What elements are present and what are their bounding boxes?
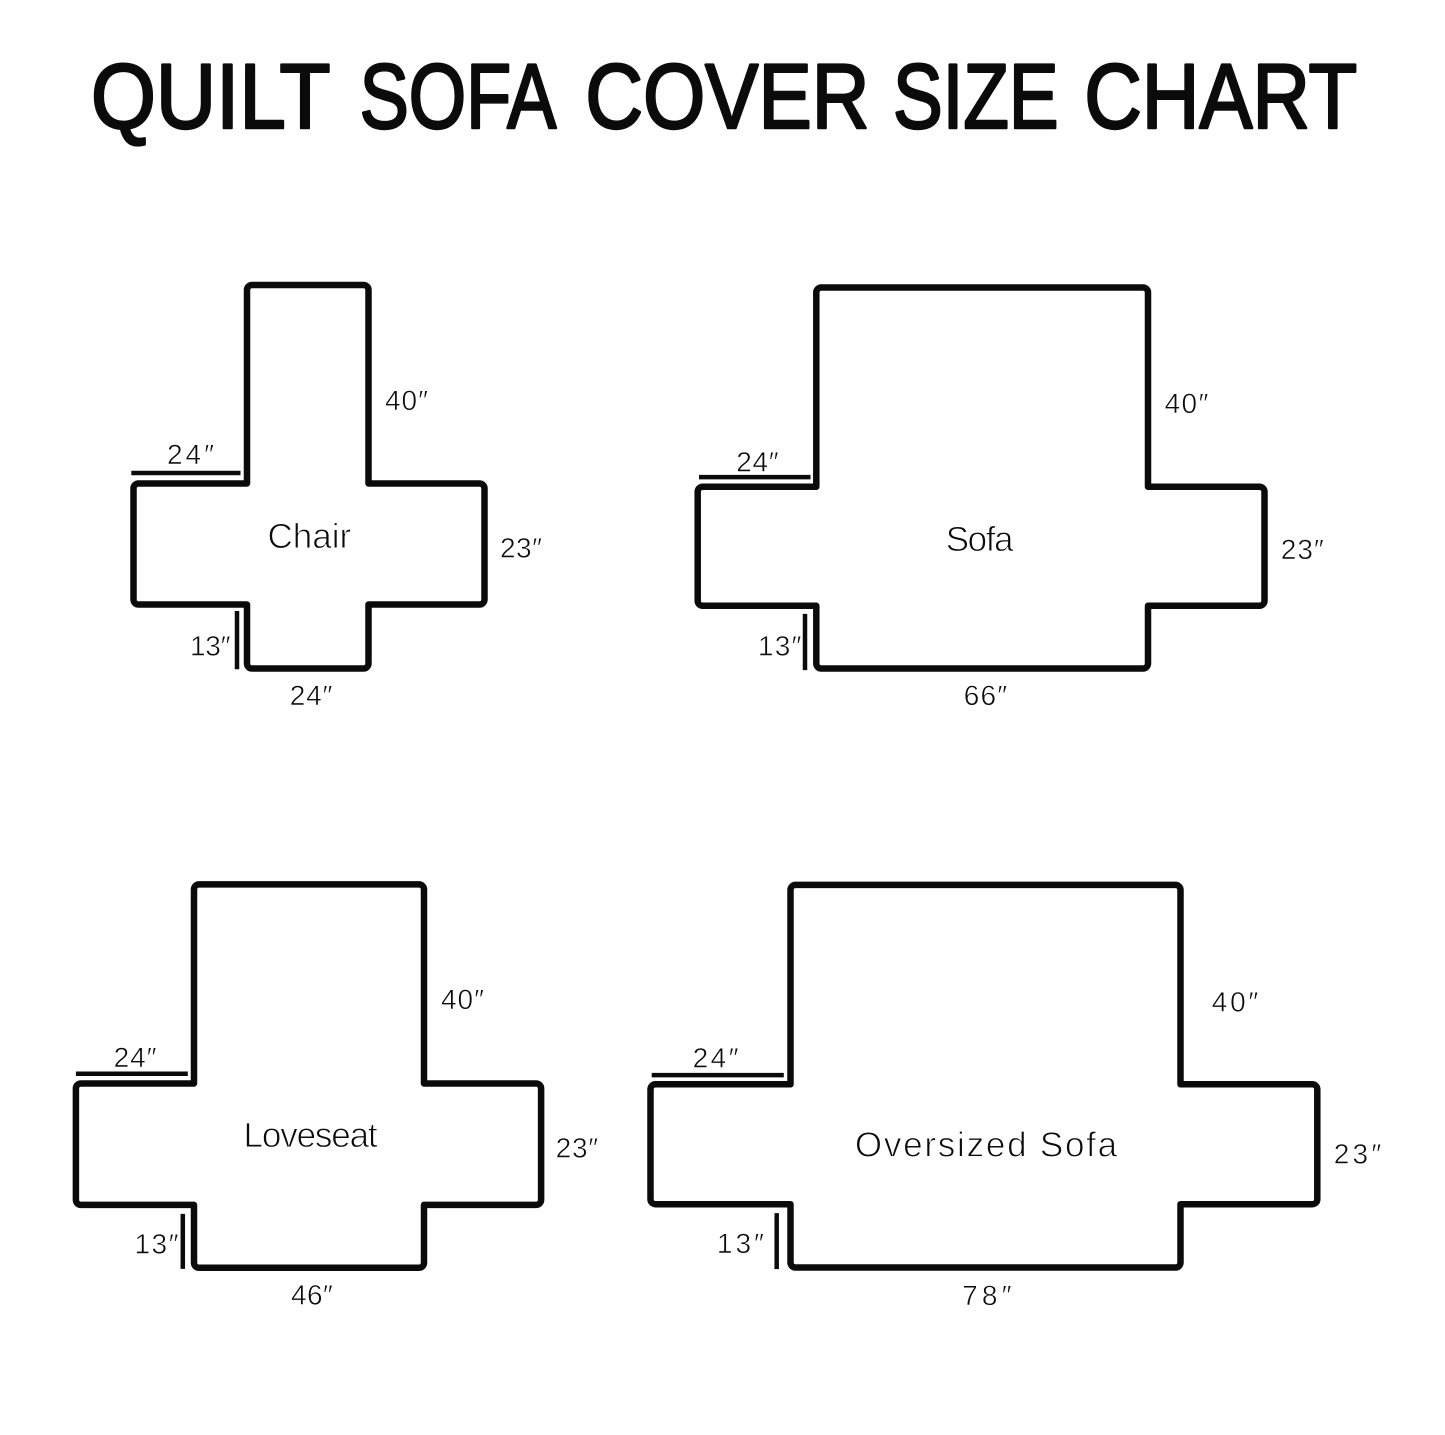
svg-text:13″: 13″	[135, 1229, 179, 1260]
svg-text:13″: 13″	[717, 1228, 764, 1259]
svg-text:40″: 40″	[385, 385, 428, 416]
svg-text:SIZE: SIZE	[893, 46, 1059, 148]
svg-text:COVER: COVER	[585, 46, 869, 148]
svg-text:Oversized Sofa: Oversized Sofa	[855, 1125, 1118, 1164]
svg-text:23″: 23″	[1334, 1138, 1382, 1169]
svg-text:Sofa: Sofa	[946, 520, 1014, 559]
svg-text:46″: 46″	[291, 1280, 333, 1311]
svg-text:24″: 24″	[290, 680, 333, 711]
svg-text:23″: 23″	[556, 1133, 599, 1164]
svg-text:40″: 40″	[1212, 987, 1259, 1018]
svg-text:66″: 66″	[964, 680, 1007, 711]
svg-text:40″: 40″	[441, 984, 484, 1015]
svg-text:Loveseat: Loveseat	[244, 1116, 378, 1155]
svg-text:SOFA: SOFA	[360, 46, 557, 148]
svg-text:24″: 24″	[736, 447, 779, 478]
svg-text:13″: 13″	[758, 631, 802, 662]
svg-text:QUILT: QUILT	[91, 46, 331, 148]
svg-text:24″: 24″	[114, 1042, 157, 1073]
svg-text:24″: 24″	[693, 1043, 739, 1074]
svg-text:13″: 13″	[190, 630, 231, 661]
svg-text:78″: 78″	[962, 1280, 1011, 1311]
svg-text:CHART: CHART	[1084, 46, 1357, 148]
svg-text:23″: 23″	[1281, 534, 1324, 565]
svg-text:23″: 23″	[500, 532, 542, 563]
svg-text:Chair: Chair	[267, 517, 351, 556]
svg-text:40″: 40″	[1165, 388, 1209, 419]
svg-text:24″: 24″	[167, 439, 214, 470]
